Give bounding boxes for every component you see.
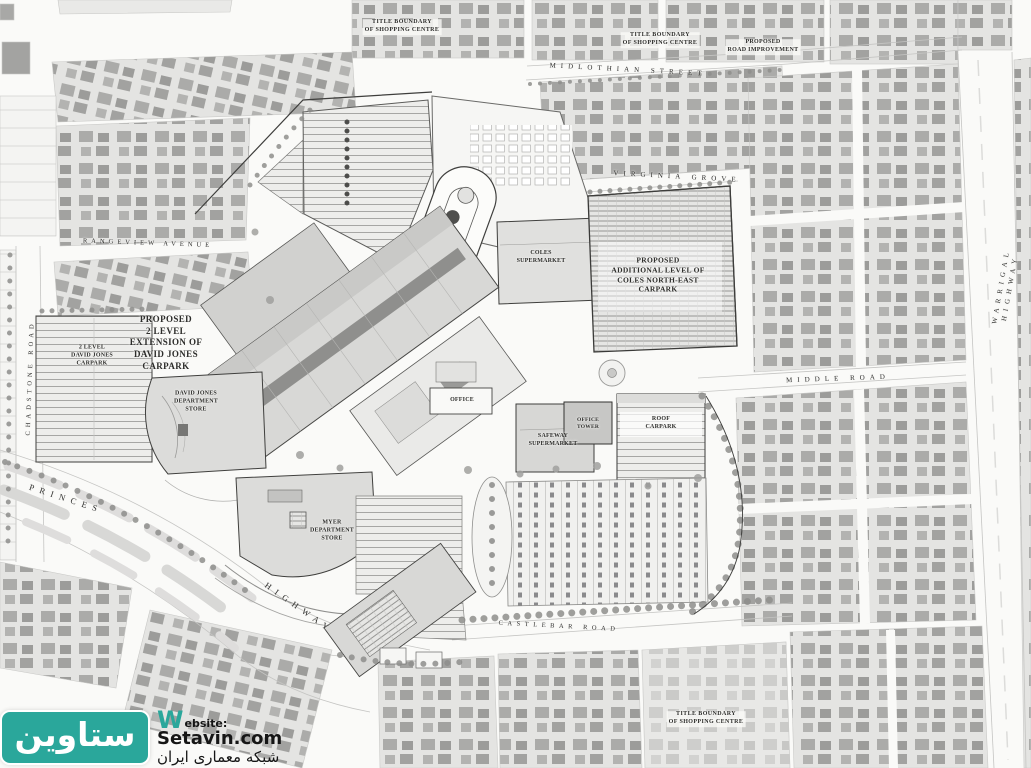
david-jones-building: [145, 372, 266, 474]
plan-canvas: [0, 0, 1031, 768]
site-plan: TITLE BOUNDARY OF SHOPPING CENTRETITLE B…: [0, 0, 1031, 768]
office-building: [430, 388, 492, 414]
setavin-logo-badge: ستاوين: [0, 710, 150, 765]
coles-building: [497, 218, 601, 304]
website-w-initial: W: [157, 711, 183, 729]
website-label: W ebsite:: [157, 711, 227, 729]
se-surface-carpark: [506, 478, 708, 606]
office-tower-building: [564, 402, 612, 444]
setavin-brand-farsi: ستاوين: [15, 718, 136, 751]
setavin-watermark: ستاوين W ebsite: Setavin.com شبكه معمارى…: [0, 710, 282, 765]
setavin-domain: Setavin.com: [157, 729, 282, 748]
watermark-text-block: W ebsite: Setavin.com شبكه معمارى ايران: [157, 711, 282, 765]
roof-carpark-building: [617, 394, 705, 482]
setavin-tagline-farsi: شبكه معمارى ايران: [157, 749, 279, 765]
